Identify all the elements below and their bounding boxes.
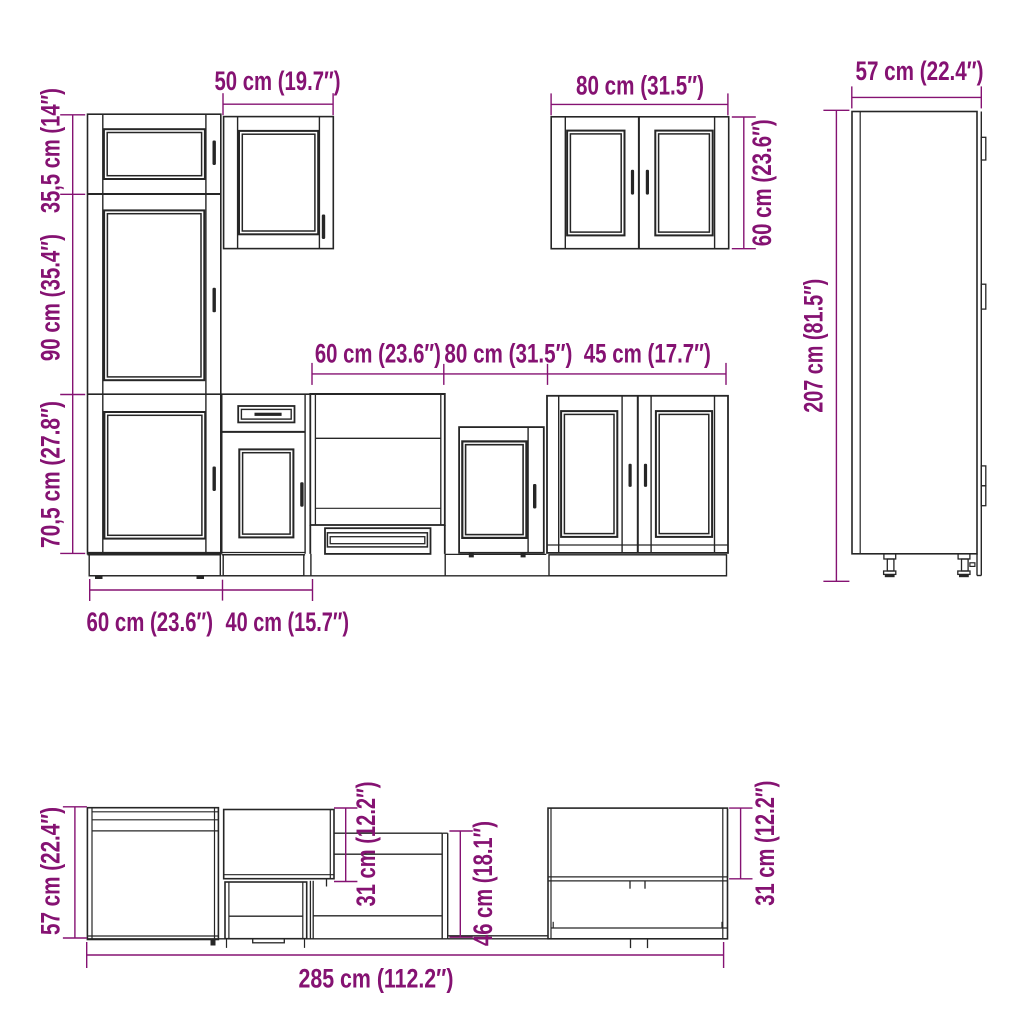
- svg-text:60 cm (23.6″): 60 cm (23.6″): [315, 339, 441, 369]
- svg-text:31 cm (12.2″): 31 cm (12.2″): [351, 782, 381, 907]
- svg-text:285 cm (112.2″): 285 cm (112.2″): [299, 964, 454, 994]
- svg-text:60 cm (23.6″): 60 cm (23.6″): [87, 607, 214, 637]
- svg-text:50 cm (19.7″): 50 cm (19.7″): [215, 66, 341, 96]
- svg-text:57 cm (22.4″): 57 cm (22.4″): [36, 807, 66, 935]
- svg-text:40 cm (15.7″): 40 cm (15.7″): [226, 607, 350, 637]
- svg-text:57 cm (22.4″): 57 cm (22.4″): [856, 56, 984, 86]
- svg-text:90 cm (35.4″): 90 cm (35.4″): [36, 234, 66, 361]
- svg-text:80 cm (31.5″): 80 cm (31.5″): [576, 71, 704, 101]
- svg-text:31 cm (12.2″): 31 cm (12.2″): [750, 781, 780, 906]
- svg-text:45 cm (17.7″): 45 cm (17.7″): [584, 339, 711, 369]
- svg-text:207 cm (81.5″): 207 cm (81.5″): [799, 279, 829, 413]
- svg-text:35,5 cm (14″): 35,5 cm (14″): [36, 88, 66, 213]
- svg-text:70,5 cm (27.8″): 70,5 cm (27.8″): [36, 401, 66, 548]
- svg-text:60 cm (23.6″): 60 cm (23.6″): [747, 119, 777, 246]
- svg-text:46 cm (18.1″): 46 cm (18.1″): [468, 821, 498, 946]
- svg-text:80 cm (31.5″): 80 cm (31.5″): [444, 339, 572, 369]
